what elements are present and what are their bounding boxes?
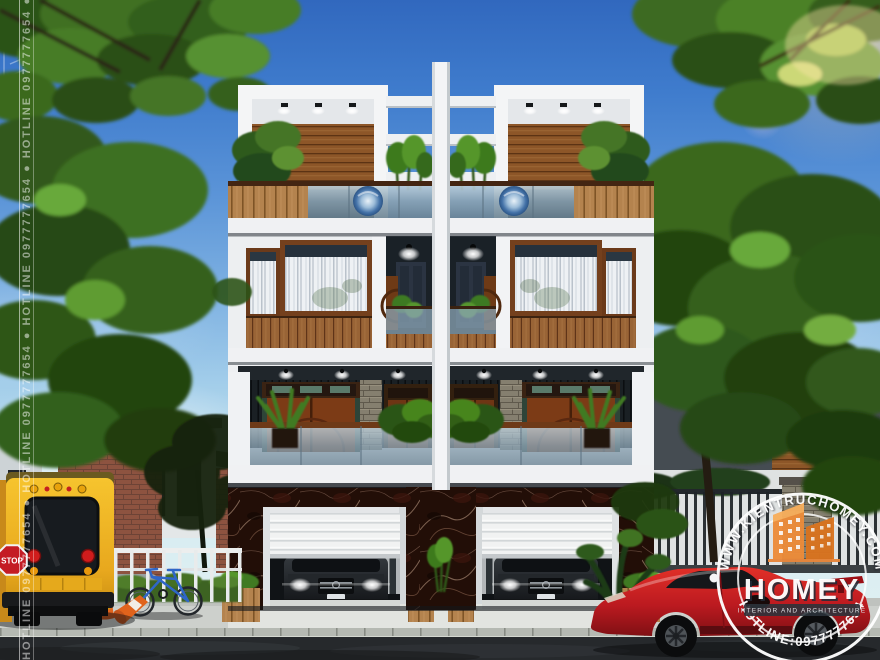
stamp-tagline: INTERIOR AND ARCHITECTURE: [738, 608, 867, 615]
stamp-watermark: WWW.KIENTRUCHOMEY.COM HOTLINE:0977777654: [0, 0, 880, 660]
stamp-brand: HOMEY: [744, 574, 860, 606]
architectural-render: HOMEY INTERIOR AND ARCHITECTURE: [0, 0, 880, 660]
